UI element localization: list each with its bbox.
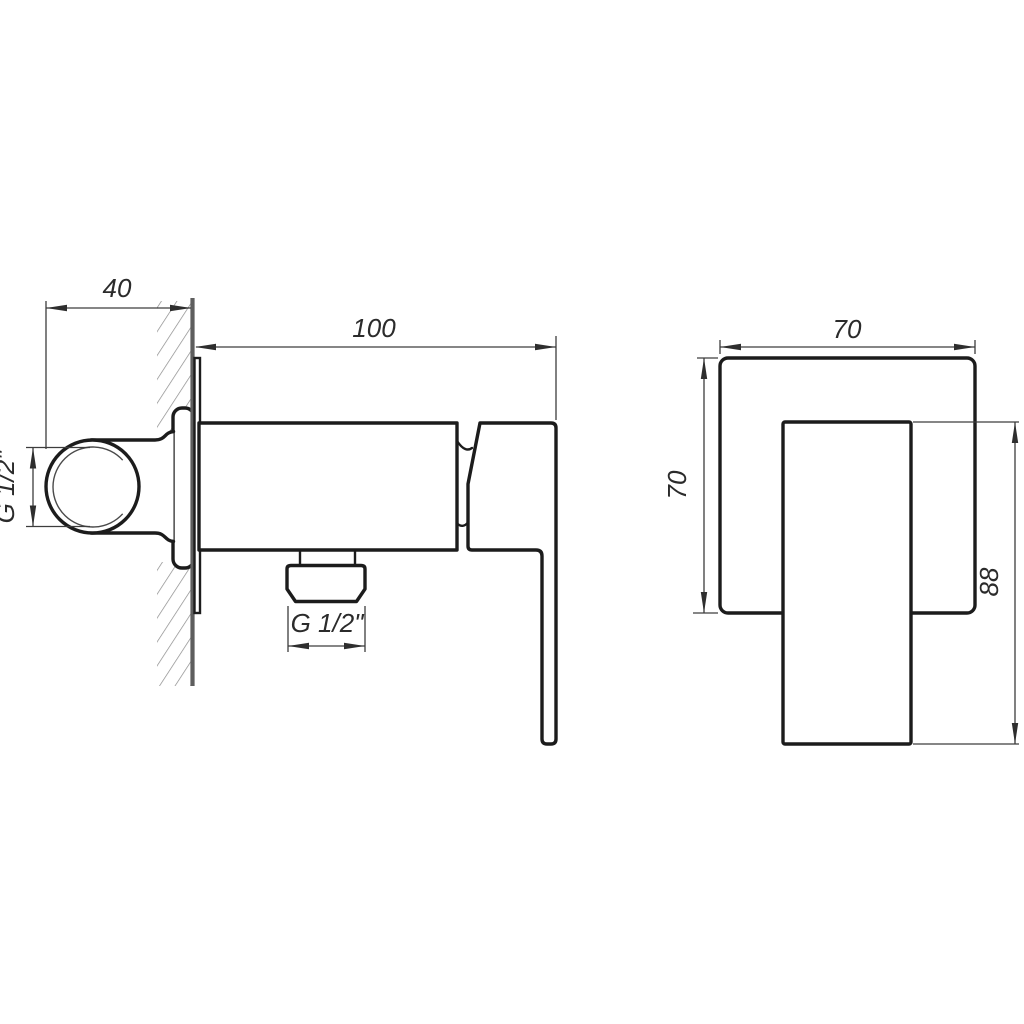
- arrow-right: [344, 643, 365, 649]
- dim-label-outlet-thread: G 1/2": [291, 608, 366, 638]
- arrow-left: [288, 643, 309, 649]
- arrow-right: [535, 344, 556, 350]
- arrow-left: [720, 344, 741, 350]
- arrow-up: [30, 448, 36, 469]
- arrow-up: [1012, 422, 1018, 443]
- arrow-up: [701, 358, 707, 379]
- mixer-body: [199, 423, 457, 550]
- handle-joint-arc-upper: [457, 441, 472, 450]
- dim-label-body-length: 100: [352, 313, 396, 343]
- arrow-right: [954, 344, 975, 350]
- dimension-body-length: 100: [195, 313, 556, 420]
- arrow-down: [30, 506, 36, 527]
- arrow-left: [195, 344, 216, 350]
- side-view: 40 100 G 1/2" G 1/2": [0, 273, 556, 744]
- front-handle: [783, 422, 911, 744]
- wall-hatching-lower: [157, 562, 191, 686]
- dimension-plate-height: 70: [662, 358, 718, 613]
- dim-label-inlet-thread: G 1/2": [0, 449, 20, 524]
- dimension-plate-width: 70: [720, 314, 975, 354]
- dim-label-plate-height: 70: [662, 470, 692, 499]
- inlet-arm-bottom-edge: [91, 533, 174, 542]
- dimension-outlet-thread: G 1/2": [288, 606, 365, 652]
- technical-drawing-canvas: 40 100 G 1/2" G 1/2": [0, 0, 1024, 1024]
- front-view: 70 70 88: [662, 314, 1019, 744]
- lever-handle-side: [468, 423, 556, 744]
- arrow-left: [46, 305, 67, 311]
- dim-label-wall-offset: 40: [103, 273, 132, 303]
- arrow-down: [701, 592, 707, 613]
- outlet-nut: [287, 566, 365, 602]
- arrow-down: [1012, 723, 1018, 744]
- dim-label-handle-height: 88: [974, 567, 1004, 596]
- drawing-page: 40 100 G 1/2" G 1/2": [0, 0, 1024, 1024]
- inlet-thread-outer-circle: [46, 440, 139, 533]
- dim-label-plate-width: 70: [833, 314, 862, 344]
